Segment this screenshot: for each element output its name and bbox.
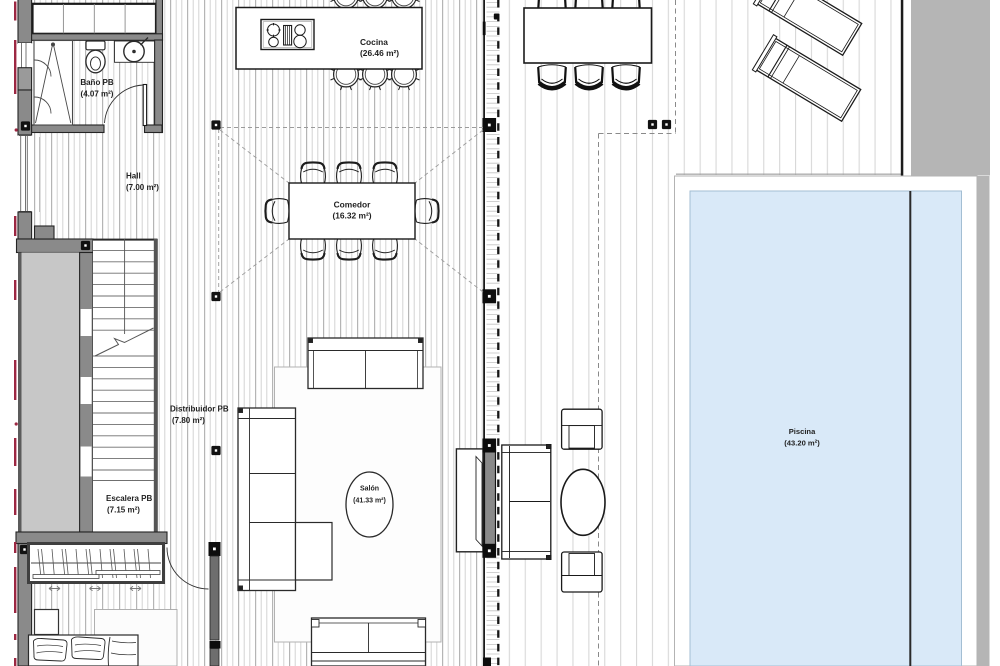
svg-text:Comedor: Comedor — [334, 200, 372, 210]
svg-text:(26.46 m²): (26.46 m²) — [360, 48, 399, 58]
svg-text:(41.33 m²): (41.33 m²) — [353, 498, 386, 505]
svg-text:(4.07 m²): (4.07 m²) — [81, 90, 114, 99]
svg-text:Salón: Salón — [360, 486, 379, 493]
svg-text:Distribuidor PB: Distribuidor PB — [170, 405, 229, 414]
svg-text:(16.32 m²): (16.32 m²) — [332, 211, 371, 221]
svg-text:(7.00 m²): (7.00 m²) — [126, 183, 159, 192]
svg-text:Cocina: Cocina — [360, 37, 388, 47]
svg-text:Baño PB: Baño PB — [80, 78, 114, 87]
svg-text:(7.15 m²): (7.15 m²) — [107, 506, 140, 515]
svg-text:Hall: Hall — [126, 172, 141, 181]
svg-text:(7.80 m²): (7.80 m²) — [172, 416, 205, 425]
svg-text:Piscina: Piscina — [789, 427, 816, 436]
svg-text:Escalera PB: Escalera PB — [106, 494, 152, 503]
svg-text:(43.20 m²): (43.20 m²) — [784, 439, 820, 448]
